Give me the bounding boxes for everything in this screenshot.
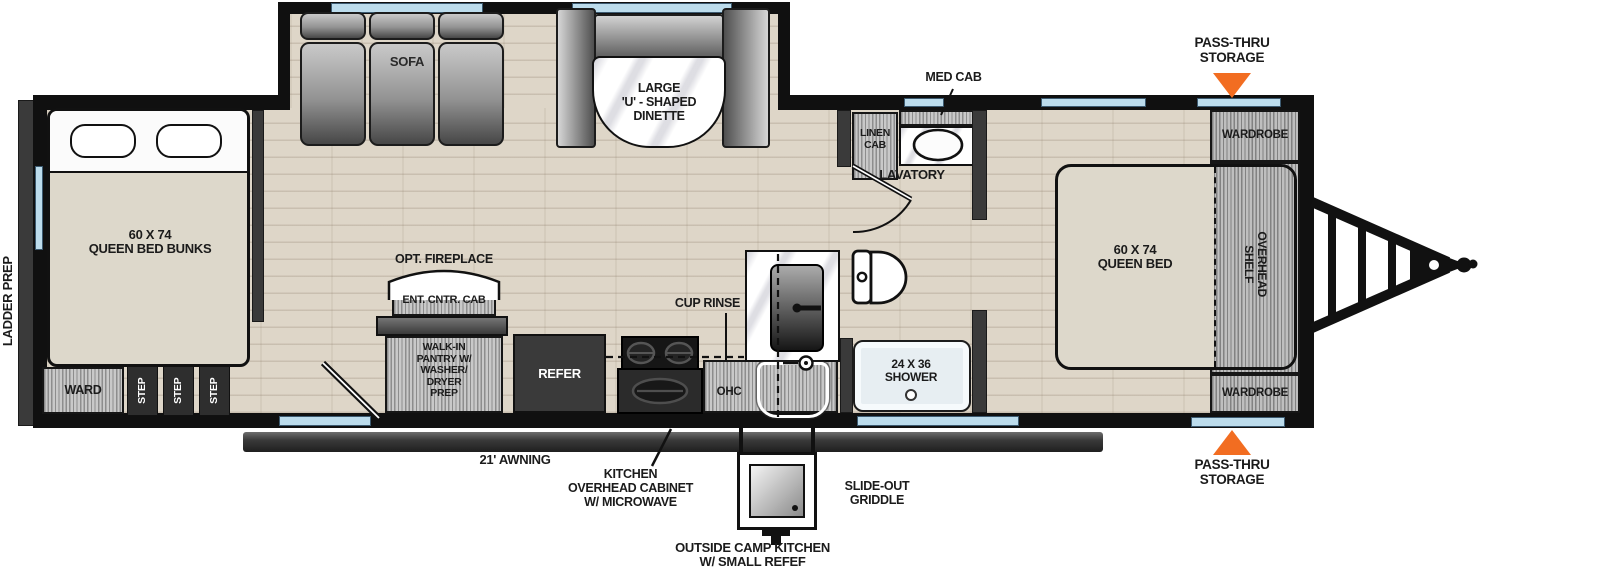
pillow — [70, 124, 136, 158]
bath-wall-right-lower — [972, 310, 987, 413]
window — [858, 417, 1018, 425]
label-med-cab: MED CAB — [906, 71, 1001, 85]
label-outside-kitchen: OUTSIDE CAMP KITCHEN W/ SMALL REFEF — [650, 541, 855, 570]
label-shower: 24 X 36 SHOWER — [856, 358, 966, 384]
shower-wall-left — [840, 338, 853, 413]
label-linen-cab: LINEN CAB — [849, 128, 901, 151]
slideout-wall-right — [778, 2, 790, 110]
rv-floorplan: LADDER PREP 60 X 74 QUEEN BED BUNKS WARD… — [0, 0, 1600, 584]
label-opt-fireplace: OPT. FIREPLACE — [378, 253, 510, 267]
window-rear — [36, 167, 42, 249]
window — [1192, 418, 1284, 426]
label-refer: REFER — [513, 367, 606, 381]
pass-thru-arrow-top — [1213, 73, 1251, 98]
label-step: STEP — [137, 371, 149, 411]
label-pantry: WALK-IN PANTRY W/ WASHER/ DRYER PREP — [389, 342, 499, 400]
pillow — [156, 124, 222, 158]
window — [280, 417, 370, 425]
label-ohc: OHC — [704, 386, 754, 399]
slideout-wall-left — [278, 2, 290, 110]
label-ward: WARD — [52, 384, 114, 398]
label-sofa: SOFA — [347, 55, 467, 69]
label-kitchen-overhead-cabinet: KITCHEN OVERHEAD CABINET W/ MICROWAVE — [553, 468, 708, 509]
ladder-prep-panel — [18, 100, 34, 426]
label-bunk-bed: 60 X 74 QUEEN BED BUNKS — [60, 228, 240, 257]
bunk-partition-wall — [252, 110, 264, 322]
counter-bar — [376, 316, 508, 336]
label-overhead-shelf: OVERHEAD SHELF — [1242, 189, 1268, 339]
kitchen-sink — [770, 264, 824, 352]
window — [1198, 99, 1280, 106]
label-wardrobe-bottom: WARDROBE — [1210, 387, 1300, 400]
label-pass-thru-bottom: PASS-THRU STORAGE — [1172, 458, 1292, 488]
wall-front — [1300, 95, 1314, 428]
label-pass-thru-top: PASS-THRU STORAGE — [1172, 36, 1292, 66]
dinette-bench-right — [722, 8, 770, 148]
pass-thru-arrow-bottom — [1213, 430, 1251, 455]
sofa-backrest — [369, 12, 435, 40]
label-wardrobe-top: WARDROBE — [1210, 129, 1300, 142]
dinette-bench-back — [594, 14, 724, 62]
window — [1042, 99, 1145, 106]
outside-camp-kitchen-griddle — [749, 464, 805, 518]
label-queen-bed: 60 X 74 QUEEN BED — [1075, 243, 1195, 272]
hitch-icon — [1312, 202, 1478, 328]
label-dinette: LARGE 'U' - SHAPED DINETTE — [597, 82, 721, 123]
label-awning: 21' AWNING — [450, 453, 580, 467]
label-lavatory: LAVATORY — [852, 168, 972, 182]
sofa-backrest — [438, 12, 504, 40]
bath-wall-right-upper — [972, 110, 987, 220]
label-step: STEP — [209, 371, 221, 411]
med-cab — [899, 110, 977, 126]
lavatory-counter — [899, 126, 977, 166]
label-slide-out-griddle: SLIDE-OUT GRIDDLE — [822, 480, 932, 508]
window — [332, 4, 482, 12]
dinette-bench-left — [556, 8, 596, 148]
label-ent-cntr-cab: ENT. CNTR. CAB — [394, 294, 494, 306]
label-step: STEP — [173, 371, 185, 411]
window — [905, 99, 943, 106]
window — [573, 4, 731, 12]
sofa-backrest — [300, 12, 366, 40]
awning-bar — [243, 432, 1103, 452]
label-cup-rinse: CUP RINSE — [660, 297, 755, 311]
slide-out-griddle-stored — [757, 362, 829, 418]
label-ladder-prep: LADDER PREP — [1, 231, 15, 371]
